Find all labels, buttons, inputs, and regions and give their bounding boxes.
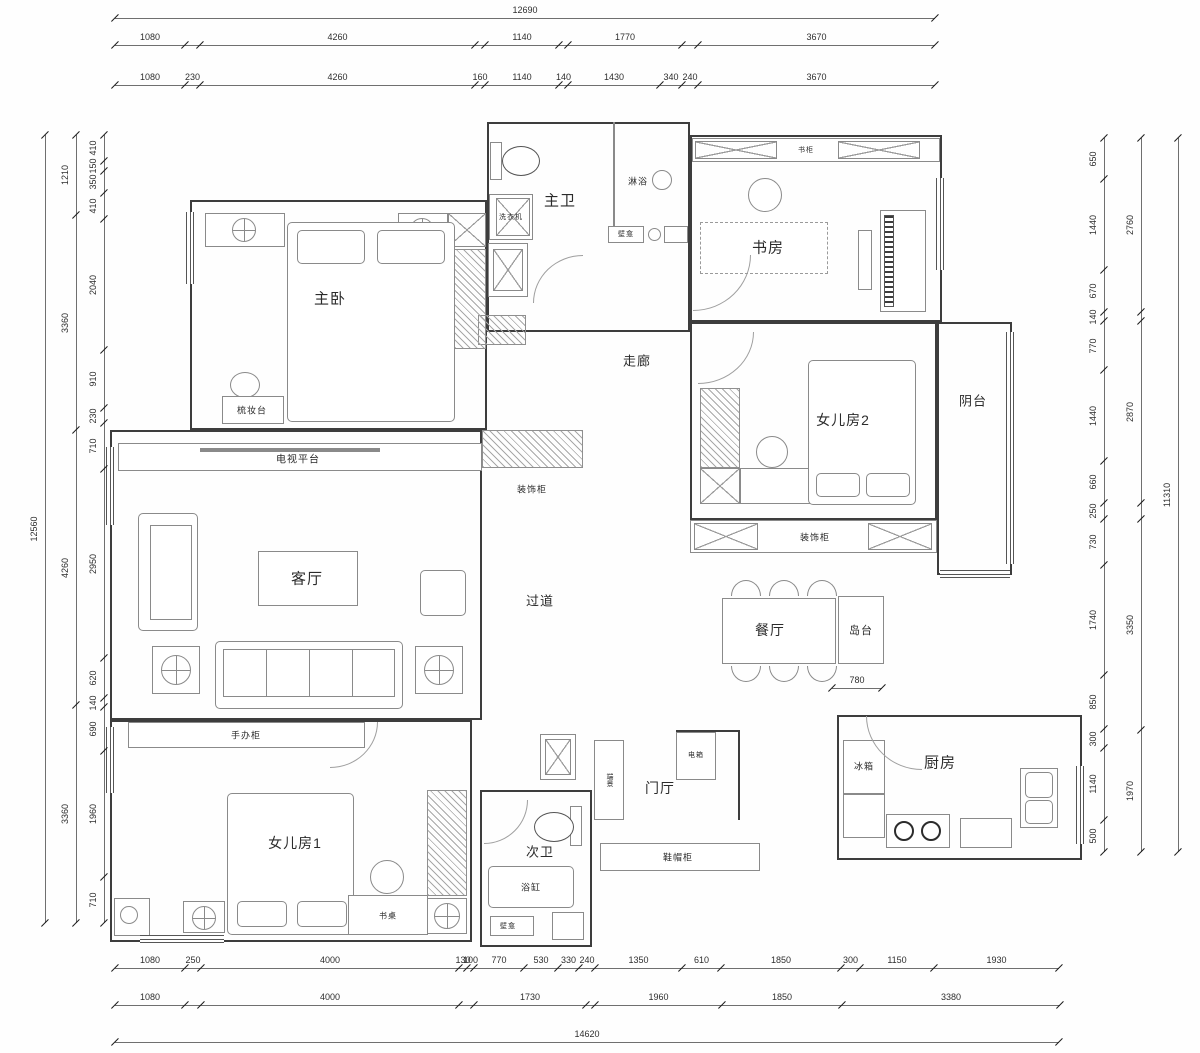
piano-bench <box>858 230 872 290</box>
label-dresser: 梳妆台 <box>237 404 267 417</box>
room-label-daughter1: 女儿房1 <box>268 833 322 853</box>
cushion-divider <box>352 649 353 697</box>
window <box>106 447 114 525</box>
dimension-tick <box>1056 1001 1064 1009</box>
lamp-symbol <box>434 903 460 929</box>
door-arc <box>330 722 378 768</box>
dim-top-major <box>115 45 935 46</box>
sink-bowl <box>1025 772 1053 798</box>
room-label-daughter2: 女儿房2 <box>816 410 870 430</box>
dim-top-minor <box>115 85 935 86</box>
dimension-text: 1770 <box>615 32 635 42</box>
dimension-text: 690 <box>88 721 98 736</box>
dimension-text: 3670 <box>806 32 826 42</box>
wall-shower-partition <box>613 122 615 226</box>
room-label-bath2: 次卫 <box>526 842 554 861</box>
deco-cabinet-hatch <box>482 430 583 468</box>
dimension-text: 4260 <box>327 72 347 82</box>
dimension-text: 710 <box>88 438 98 453</box>
toilet <box>534 812 574 842</box>
dimension-text: 250 <box>185 955 200 965</box>
dimension-text: 4000 <box>320 992 340 1002</box>
dimension-text: 610 <box>694 955 709 965</box>
window <box>140 935 224 943</box>
chair <box>370 860 404 894</box>
door-leaf-arc <box>533 255 583 303</box>
dimension-text: 3670 <box>806 72 826 82</box>
dimension-text: 300 <box>1088 731 1098 746</box>
dimension-text: 670 <box>1088 283 1098 298</box>
dimension-text: 140 <box>556 72 571 82</box>
cushion-divider <box>266 649 267 697</box>
lamp-symbol <box>192 906 216 930</box>
dimension-text: 710 <box>88 892 98 907</box>
room-label-master-bedroom: 主卧 <box>314 288 346 309</box>
dim-bottom-major <box>115 1005 1060 1006</box>
piano-keys <box>884 215 894 307</box>
floor-plan: 主卧主卫淋浴洗衣机壁龛书房书柜梳妆台走廊女儿房2阴台装饰柜装饰柜电视平台客厅过道… <box>0 0 1200 1053</box>
room-label-passage: 过道 <box>526 591 554 610</box>
dimension-text: 1080 <box>140 72 160 82</box>
window <box>936 178 944 270</box>
label-niche: 壁龛 <box>618 229 634 239</box>
desk <box>740 468 810 504</box>
dimension-text: 500 <box>1088 828 1098 843</box>
dimension-text: 1080 <box>140 32 160 42</box>
dimension-text: 3360 <box>60 804 70 824</box>
dimension-text: 2950 <box>88 553 98 573</box>
label-shower: 淋浴 <box>628 175 648 188</box>
label-washing-machine: 洗衣机 <box>499 212 523 222</box>
fan-symbol <box>424 655 454 685</box>
cabinet-x <box>838 141 920 159</box>
dimension-text: 1850 <box>772 992 792 1002</box>
fan-symbol <box>161 655 191 685</box>
dimension-text: 1140 <box>512 72 531 82</box>
dimension-text: 3360 <box>60 312 70 332</box>
dimension-text: 230 <box>88 408 98 423</box>
chair <box>807 666 837 682</box>
chair <box>756 436 788 468</box>
dimension-text: 140 <box>88 695 98 710</box>
dimension-text: 3380 <box>941 992 961 1002</box>
dimension-text: 3350 <box>1125 614 1135 634</box>
pillow <box>237 901 287 927</box>
sink-basin <box>493 249 523 291</box>
dimension-text: 530 <box>533 955 548 965</box>
dim-left-minor <box>104 135 105 923</box>
dimension-text: 620 <box>88 670 98 685</box>
dimension-text: 1350 <box>628 955 648 965</box>
cabinet-x <box>868 523 932 550</box>
dimension-text: 11310 <box>1162 483 1172 507</box>
label-deco-cabinet: 装饰柜 <box>517 483 547 496</box>
label-niche: 壁龛 <box>500 921 516 931</box>
dimension-tick <box>878 684 886 692</box>
dimension-tick <box>1055 1038 1063 1046</box>
dimension-text: 14620 <box>574 1029 599 1039</box>
room-balcony <box>937 322 1012 575</box>
label-tv-platform: 电视平台 <box>276 451 320 466</box>
dimension-tick <box>931 81 939 89</box>
sofa-cushion <box>150 525 192 620</box>
dimension-text: 410 <box>88 140 98 155</box>
door-leaf-arc <box>484 800 528 844</box>
dimension-text: 2870 <box>1125 402 1135 422</box>
dimension-text: 4260 <box>327 32 347 42</box>
dimension-text: 300 <box>843 955 858 965</box>
dimension-tick <box>1055 964 1063 972</box>
burner <box>894 821 914 841</box>
shower-tray <box>552 912 584 940</box>
dimension-tick <box>1174 848 1182 856</box>
label-bathtub: 浴缸 <box>521 881 541 894</box>
room-label-living: 客厅 <box>291 568 323 589</box>
label-figure-cabinet: 手办柜 <box>231 729 261 742</box>
pillow <box>297 230 365 264</box>
dimension-text: 1430 <box>604 72 624 82</box>
dim-left-total <box>45 135 46 923</box>
toilet-tank <box>490 142 502 180</box>
shower-head <box>652 170 672 190</box>
room-label-kitchen: 厨房 <box>924 752 956 773</box>
lamp-symbol <box>232 218 256 242</box>
window <box>1076 766 1084 844</box>
dimension-tick <box>931 14 939 22</box>
label-island: 岛台 <box>849 622 873 638</box>
dimension-text: 1440 <box>1088 405 1098 425</box>
dimension-text: 1960 <box>648 992 668 1002</box>
dimension-text: 1210 <box>60 165 70 185</box>
dimension-text: 1730 <box>520 992 540 1002</box>
cabinet-x <box>700 468 740 504</box>
window <box>940 570 1010 578</box>
dimension-text: 250 <box>1088 503 1098 518</box>
label-fridge: 冰箱 <box>854 760 874 773</box>
dimension-text: 4000 <box>320 955 340 965</box>
pillow <box>866 473 910 497</box>
window <box>186 212 194 284</box>
dimension-text: 650 <box>1088 151 1098 166</box>
armchair <box>420 570 466 616</box>
wall-entry-right <box>738 732 740 820</box>
shower-tray <box>664 226 688 243</box>
dimension-tick <box>1100 848 1108 856</box>
cabinet-x <box>694 523 758 550</box>
cushion-divider <box>309 649 310 697</box>
closet <box>700 388 740 468</box>
room-label-master-bath: 主卫 <box>544 190 576 211</box>
dim-right-major <box>1141 138 1142 852</box>
cutting-board <box>960 818 1012 848</box>
window <box>1006 332 1014 564</box>
cabinet-x <box>695 141 777 159</box>
label-console: 端景 <box>604 773 614 787</box>
dimension-text: 2760 <box>1125 215 1135 235</box>
door-arc <box>693 255 751 311</box>
chair <box>769 666 799 682</box>
dimension-text: 1150 <box>887 955 906 965</box>
dimension-text: 1440 <box>1088 214 1098 234</box>
dimension-tick <box>100 919 108 927</box>
dimension-text: 230 <box>185 72 200 82</box>
dimension-text: 1080 <box>140 955 160 965</box>
label-shoe-cabinet: 鞋帽柜 <box>663 851 693 864</box>
label-desk: 书桌 <box>379 911 397 922</box>
dimension-text: 770 <box>1088 338 1098 353</box>
drain <box>120 906 138 924</box>
dimension-text: 140 <box>1088 309 1098 324</box>
sink-bowl <box>1025 800 1053 824</box>
door-arc <box>533 255 583 303</box>
room-label-balcony: 阴台 <box>959 391 987 410</box>
door-leaf-arc <box>330 722 378 768</box>
dimension-text: 350 <box>88 174 98 189</box>
chair <box>748 178 782 212</box>
door-leaf-arc <box>698 332 754 384</box>
dimension-text: 1740 <box>1088 610 1098 630</box>
dimension-text: 850 <box>1088 694 1098 709</box>
dim-top-total <box>115 18 935 19</box>
door-leaf-arc <box>693 255 751 311</box>
dimension-text: 770 <box>491 955 506 965</box>
dim-island <box>832 688 882 689</box>
room-label-corridor: 走廊 <box>623 351 651 370</box>
pillow <box>377 230 445 264</box>
dimension-text: 1970 <box>1125 781 1135 801</box>
chair <box>807 580 837 596</box>
dim-bottom-total <box>115 1042 1059 1043</box>
dim-bottom-minor <box>115 968 1059 969</box>
dimension-text: 12560 <box>29 516 39 541</box>
dimension-text: 240 <box>579 955 594 965</box>
dimension-text: 910 <box>88 371 98 386</box>
dimension-text: 410 <box>88 198 98 213</box>
dimension-text: 150 <box>88 158 98 173</box>
door-arc <box>698 332 754 384</box>
dimension-tick <box>931 41 939 49</box>
dimension-text: 330 <box>561 955 576 965</box>
dimension-text: 1960 <box>88 804 98 824</box>
room-label-study: 书房 <box>752 237 784 258</box>
room-label-dining: 餐厅 <box>755 620 785 640</box>
pillow <box>297 901 347 927</box>
dimension-text: 240 <box>682 72 697 82</box>
sink-basin <box>545 739 571 775</box>
chair <box>769 580 799 596</box>
dimension-text: 1140 <box>512 32 531 42</box>
closet <box>427 790 467 896</box>
burner <box>921 821 941 841</box>
dimension-text: 1080 <box>140 992 160 1002</box>
door-arc <box>484 800 528 844</box>
door-arc <box>866 716 922 770</box>
dimension-text: 730 <box>1088 534 1098 549</box>
chair <box>731 580 761 596</box>
dimension-tick <box>1137 848 1145 856</box>
dimension-text: 12690 <box>512 5 537 15</box>
window <box>106 727 114 793</box>
room-label-entry: 门厅 <box>645 778 675 798</box>
dimension-text: 1850 <box>771 955 791 965</box>
dimension-text: 1140 <box>1088 774 1098 793</box>
dimension-tick <box>41 919 49 927</box>
dimension-text: 2040 <box>88 274 98 294</box>
dimension-text: 160 <box>472 72 487 82</box>
label-bookcase: 书柜 <box>798 145 814 155</box>
mirror <box>230 372 260 398</box>
dimension-tick <box>72 919 80 927</box>
counter <box>843 794 885 838</box>
toilet <box>502 146 540 176</box>
chair <box>731 666 761 682</box>
dim-left-major <box>76 135 77 923</box>
dimension-text: 340 <box>663 72 678 82</box>
label-electric-box: 电箱 <box>688 750 704 760</box>
label-deco-cabinet: 装饰柜 <box>800 531 830 544</box>
dimension-text: 4260 <box>60 557 70 577</box>
dim-right-total <box>1178 138 1179 852</box>
pillow <box>816 473 860 497</box>
door-leaf-arc <box>866 716 922 770</box>
dimension-text: 660 <box>1088 474 1098 489</box>
dimension-text: 1930 <box>986 955 1006 965</box>
dimension-text: 780 <box>849 675 864 685</box>
drain <box>648 228 661 241</box>
